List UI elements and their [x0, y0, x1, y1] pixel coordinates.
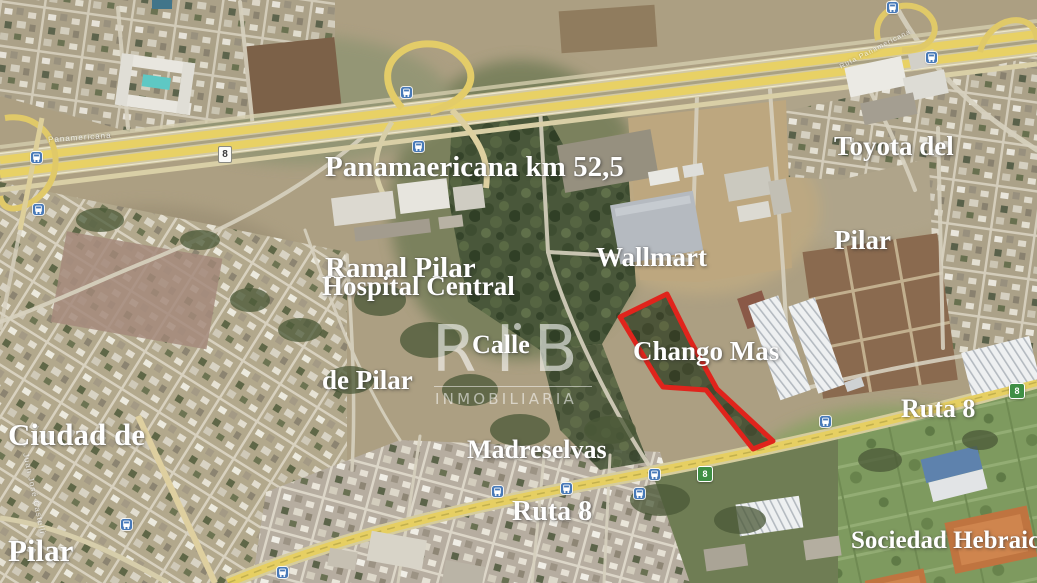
label-ciudad-line2: Pilar — [8, 532, 145, 571]
route-8-shield-green: 8 — [1009, 383, 1025, 399]
label-toyota-line1: Toyota del — [834, 131, 954, 162]
label-calle-line2: Madreselvas — [467, 432, 607, 467]
route-8-shield-green: 8 — [697, 466, 713, 482]
bus-stop-icon — [31, 152, 42, 163]
label-toyota: Toyota del Pilar — [834, 68, 954, 319]
bus-stop-icon — [820, 416, 831, 427]
watermark-logo: RIB — [432, 318, 612, 382]
label-ciudad-line1: Ciudad de — [8, 416, 145, 455]
label-walmart-line2: Chango Mas — [633, 336, 779, 367]
label-walmart-line1: Wallmart — [596, 242, 779, 273]
label-sociedad-line1: Sociedad Hebraica — [851, 525, 1037, 558]
bus-stop-icon — [634, 488, 645, 499]
route-8-shield-white: 8 — [218, 146, 232, 163]
bus-stop-icon — [33, 204, 44, 215]
label-ciudad-de-pilar: Ciudad de Pilar — [8, 338, 145, 583]
watermark-logo-i-dot — [514, 323, 521, 330]
bus-stop-icon — [277, 567, 288, 578]
bus-stop-icon — [887, 2, 898, 13]
watermark-rib-inmobiliaria: RIB INMOBILIARIA — [432, 318, 612, 408]
watermark-subtitle: INMOBILIARIA — [432, 390, 612, 408]
bus-stop-icon — [649, 469, 660, 480]
label-ruta8-bottom: Ruta 8 — [512, 496, 592, 528]
bus-stop-icon — [926, 52, 937, 63]
listing-map-image: Panamericana Ruta Panamericana Juan José… — [0, 0, 1037, 583]
label-ruta8-right: Ruta 8 — [901, 394, 975, 424]
label-walmart: Wallmart Chango Mas — [596, 179, 779, 430]
label-panamericana-line1: Panamaericana km 52,5 — [325, 151, 624, 185]
label-toyota-line2: Pilar — [834, 225, 954, 256]
label-sociedad-hebraica: Sociedad Hebraica Argentina — [851, 460, 1037, 583]
